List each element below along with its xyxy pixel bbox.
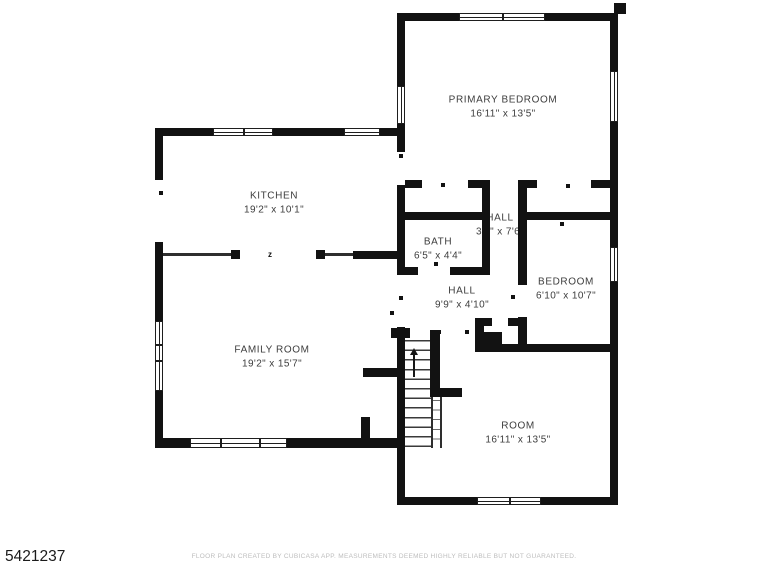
window	[459, 13, 545, 21]
window	[344, 128, 380, 136]
room-name: KITCHEN	[244, 190, 304, 204]
window	[397, 86, 405, 124]
room-dimensions: 19'2" x 10'1"	[244, 204, 304, 217]
room-dimensions: 9'9" x 4'10"	[435, 299, 489, 312]
wall	[508, 318, 527, 326]
window	[190, 438, 287, 448]
door-mark	[159, 311, 163, 315]
room-name: PRIMARY BEDROOM	[449, 94, 558, 108]
window	[155, 321, 163, 391]
stair-direction-arrow-icon	[410, 348, 418, 355]
window	[610, 71, 618, 122]
door-mark	[465, 330, 469, 334]
door-mark	[511, 295, 515, 299]
wall	[430, 388, 462, 397]
wall	[397, 212, 490, 220]
room-dimensions: 6'10" x 10'7"	[536, 290, 596, 303]
door-mark	[441, 183, 445, 187]
room-label-family-room: FAMILY ROOM19'2" x 15'7"	[234, 344, 309, 371]
door-opening	[537, 180, 591, 188]
wall	[614, 3, 626, 14]
room-dimensions: 6'5" x 4'4"	[414, 250, 462, 263]
plan-id: 5421237	[5, 548, 65, 566]
room-label-hall-lower: HALL9'9" x 4'10"	[435, 285, 489, 312]
wall	[475, 332, 502, 348]
door-opening	[490, 180, 518, 188]
wall-thin	[163, 253, 231, 256]
door-mark	[560, 222, 564, 226]
wall	[363, 368, 405, 377]
room-label-primary-bedroom: PRIMARY BEDROOM16'11" x 13'5"	[449, 94, 558, 121]
room-label-bedroom: BEDROOM6'10" x 10'7"	[536, 276, 596, 303]
wall-thin	[440, 397, 442, 448]
window	[610, 247, 618, 282]
wall	[518, 180, 527, 352]
room-name: HALL	[435, 285, 489, 299]
door-mark	[566, 184, 570, 188]
staircase-treads	[405, 340, 431, 448]
floor-plan-canvas: PRIMARY BEDROOM16'11" x 13'5"KITCHEN19'2…	[0, 0, 768, 576]
wall	[155, 128, 163, 448]
wall	[353, 251, 405, 259]
wall	[231, 250, 240, 259]
room-label-bath: BATH6'5" x 4'4"	[414, 236, 462, 263]
wall	[482, 188, 490, 275]
wall	[391, 328, 410, 338]
door-opening	[518, 285, 527, 317]
wall	[316, 250, 325, 259]
door-mark	[399, 296, 403, 300]
room-label-room: ROOM16'11" x 13'5"	[485, 420, 550, 447]
room-label-kitchen: KITCHEN19'2" x 10'1"	[244, 190, 304, 217]
disclaimer-text: FLOOR PLAN CREATED BY CUBICASA APP. MEAS…	[0, 553, 768, 560]
room-name: ROOM	[485, 420, 550, 434]
wall-thin	[325, 253, 353, 256]
room-name: BEDROOM	[536, 276, 596, 290]
door-mark	[437, 330, 441, 334]
stair-arrow-stem	[413, 355, 415, 377]
door-mark	[399, 154, 403, 158]
room-name: FAMILY ROOM	[234, 344, 309, 358]
window	[213, 128, 273, 136]
door-opening	[418, 267, 450, 275]
door-mark	[390, 311, 394, 315]
door-mark	[434, 262, 438, 266]
room-dimensions: 16'11" x 13'5"	[449, 108, 558, 121]
door-opening	[155, 180, 163, 242]
room-dimensions: 16'11" x 13'5"	[485, 434, 550, 447]
room-name: BATH	[414, 236, 462, 250]
staircase-side-flight	[433, 400, 440, 448]
window	[477, 497, 541, 505]
wall	[475, 318, 492, 326]
door-opening	[397, 275, 405, 327]
door-opening	[422, 180, 468, 188]
door-swing-mark: z	[268, 251, 272, 259]
wall	[518, 212, 618, 220]
room-dimensions: 19'2" x 15'7"	[234, 358, 309, 371]
door-mark	[159, 191, 163, 195]
wall	[430, 330, 440, 397]
